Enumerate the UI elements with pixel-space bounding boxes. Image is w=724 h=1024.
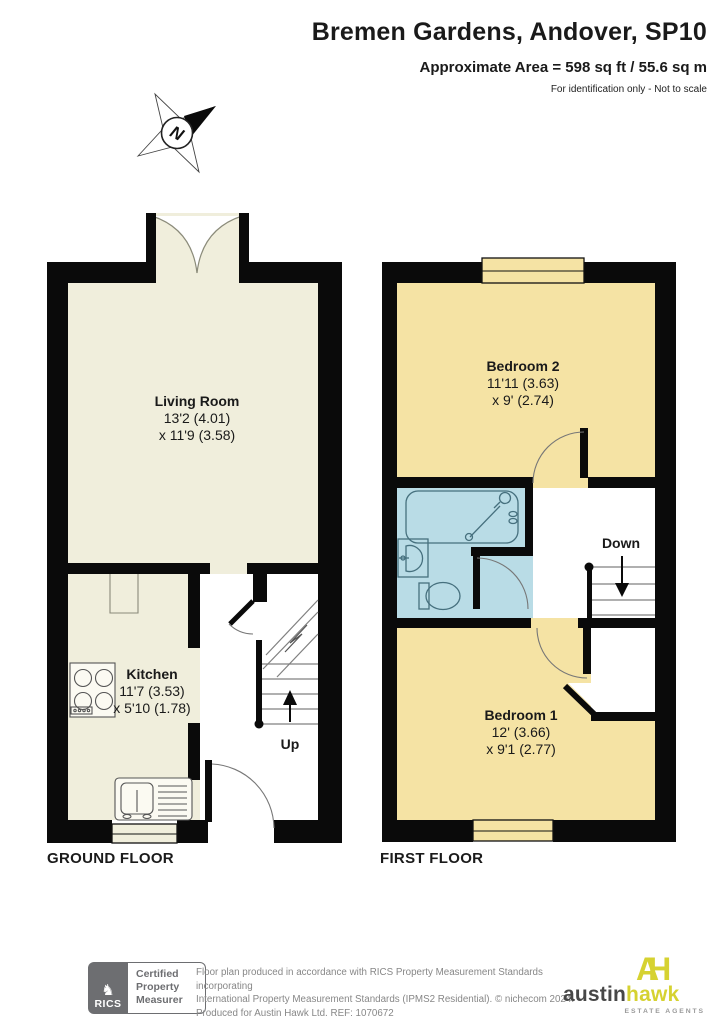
floorplan-drawing: N [0, 0, 724, 1024]
bedroom1-label: Bedroom 1 12' (3.66) x 9'1 (2.77) [421, 707, 621, 758]
approximate-area: Approximate Area = 598 sq ft / 55.6 sq m [420, 59, 707, 76]
rics-badge: ♞ RICS Certified Property Measurer [88, 962, 206, 1014]
rics-lion-icon: ♞ [101, 983, 114, 998]
kitchen-label: Kitchen 11'7 (3.53) x 5'10 (1.78) [77, 666, 227, 717]
bedroom2-window [482, 258, 584, 283]
kitchen-sink-icon [115, 778, 192, 820]
newel-post [585, 563, 594, 572]
living-room-label: Living Room 13'2 (4.01) x 11'9 (3.58) [97, 393, 297, 444]
stairs-up [255, 600, 319, 729]
identification-note: For identification only - Not to scale [551, 84, 707, 95]
first-floor-label: FIRST FLOOR [380, 850, 483, 867]
stairs-down-label: Down [586, 535, 656, 551]
stair-void [591, 628, 655, 712]
page-title: Bremen Gardens, Andover, SP10 [312, 18, 707, 47]
compass-north-icon: N [138, 94, 216, 172]
up-arrow-icon [283, 690, 297, 722]
floorplan-page: N [0, 0, 724, 1024]
living-room-door [229, 601, 253, 634]
newel-post [255, 720, 264, 729]
down-arrow-icon [615, 556, 629, 597]
certified-property-measurer-box: Certified Property Measurer [128, 962, 206, 1014]
ground-floor-label: GROUND FLOOR [47, 850, 174, 867]
stairs-down [585, 556, 656, 620]
front-door [205, 760, 274, 828]
kitchen-window [112, 824, 177, 843]
agent-tagline: ESTATE AGENTS [565, 1008, 705, 1015]
footer-disclaimer: Floor plan produced in accordance with R… [196, 966, 576, 1020]
stairs-up-label: Up [260, 736, 320, 752]
rics-logo: ♞ RICS [88, 962, 128, 1014]
bedroom2-label: Bedroom 2 11'11 (3.63) x 9' (2.74) [423, 358, 623, 409]
agent-name: austinhawk [563, 983, 679, 1007]
bedroom1-window [473, 820, 553, 841]
